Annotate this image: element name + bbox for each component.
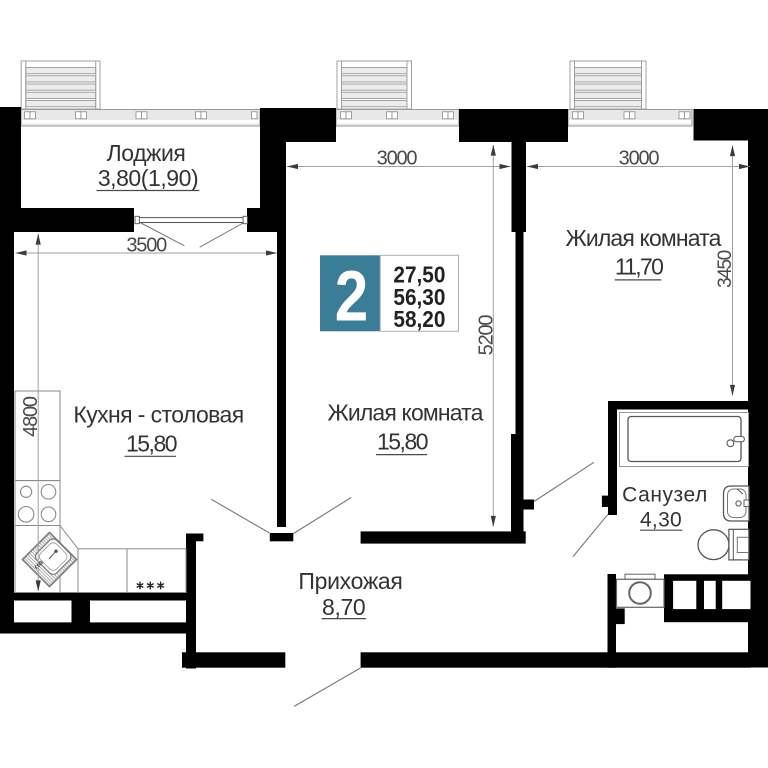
svg-text:4,30: 4,30 — [640, 509, 682, 532]
svg-text:5200: 5200 — [476, 315, 498, 356]
svg-text:2: 2 — [335, 257, 369, 337]
svg-text:Жилая комната: Жилая комната — [565, 225, 721, 251]
svg-text:Кухня - столовая: Кухня - столовая — [73, 402, 243, 428]
svg-text:15,80: 15,80 — [377, 429, 428, 455]
svg-text:3500: 3500 — [126, 235, 167, 257]
svg-text:4800: 4800 — [20, 396, 42, 437]
svg-text:15,80: 15,80 — [126, 431, 177, 457]
svg-text:3000: 3000 — [377, 148, 418, 170]
svg-text:3450: 3450 — [715, 250, 736, 288]
svg-text:Жилая комната: Жилая комната — [327, 400, 483, 426]
svg-text:3000: 3000 — [619, 148, 660, 170]
svg-text:58,20: 58,20 — [393, 306, 445, 332]
svg-text:3,80(1,90): 3,80(1,90) — [98, 165, 198, 191]
svg-text:8,70: 8,70 — [322, 594, 365, 620]
svg-text:Лоджия: Лоджия — [107, 140, 186, 166]
svg-text:Санузел: Санузел — [622, 483, 708, 506]
svg-text:11,70: 11,70 — [615, 254, 663, 280]
svg-text:Прихожая: Прихожая — [298, 568, 402, 594]
